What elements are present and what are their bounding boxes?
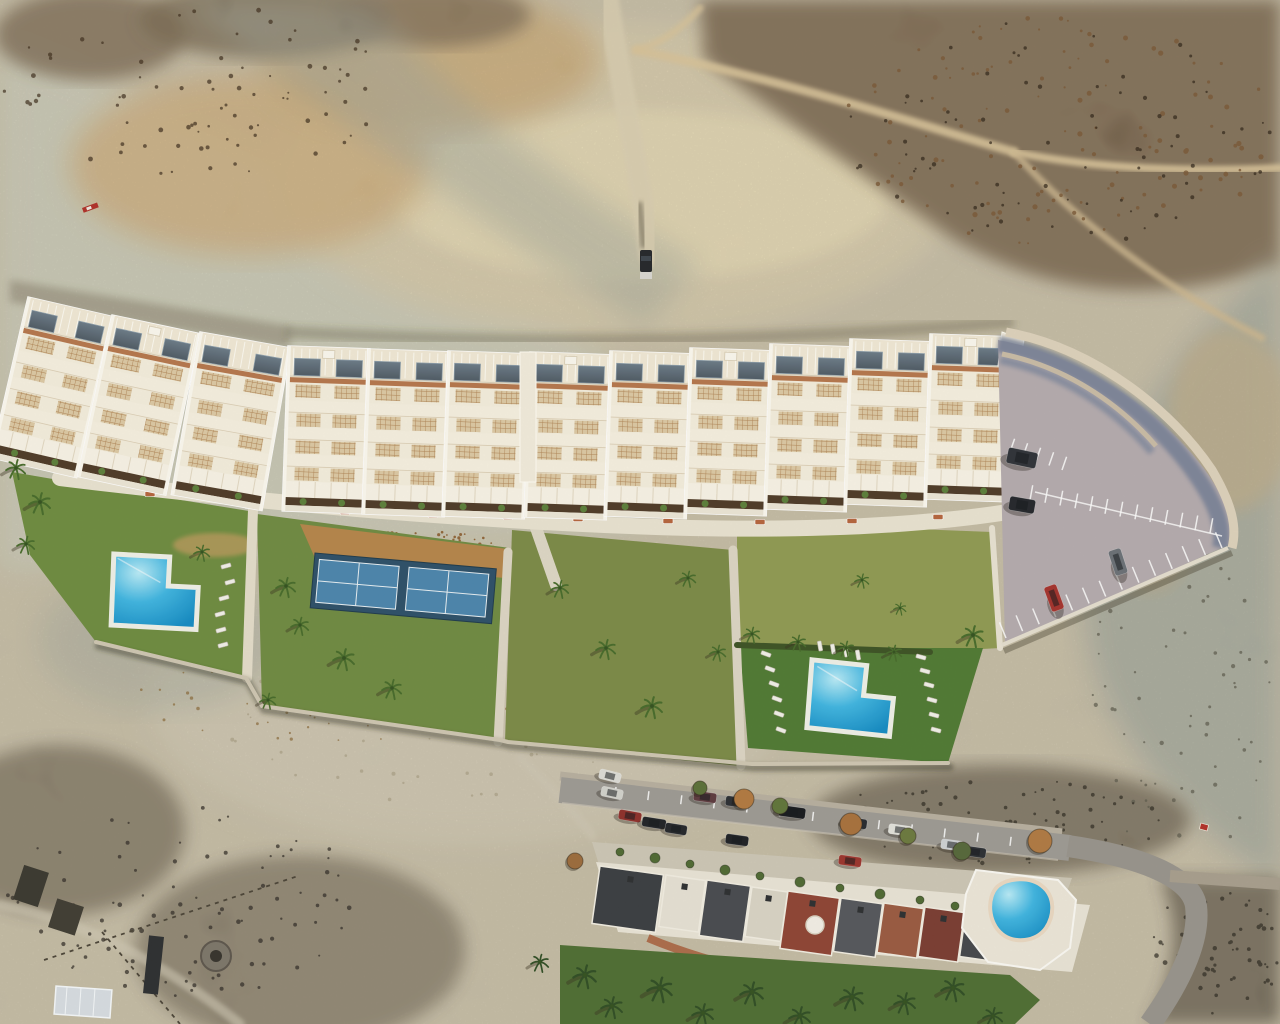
aerial-photo <box>0 0 1280 1024</box>
aerial-photo-canvas <box>0 0 1280 1024</box>
global-grain <box>0 0 1280 1024</box>
